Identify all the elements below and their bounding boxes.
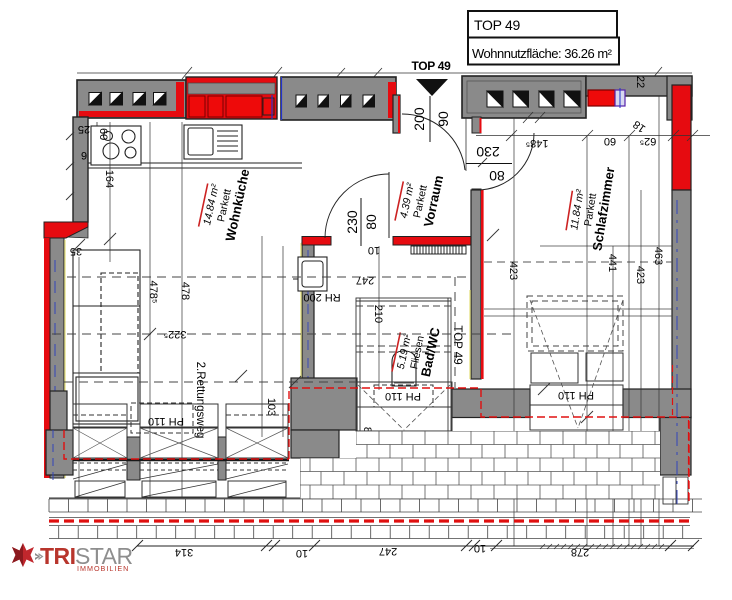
svg-text:210: 210: [372, 305, 384, 323]
svg-text:478⁵: 478⁵: [147, 281, 159, 304]
svg-text:441: 441: [606, 254, 618, 272]
svg-text:TOP 49: TOP 49: [451, 325, 463, 364]
svg-text:PH 110: PH 110: [558, 389, 594, 401]
svg-text:22: 22: [634, 76, 646, 88]
svg-text:10: 10: [474, 542, 486, 554]
svg-text:230: 230: [344, 210, 360, 234]
svg-text:247: 247: [379, 545, 397, 557]
svg-text:IMMOBILIEN: IMMOBILIEN: [77, 564, 129, 573]
svg-text:423: 423: [507, 262, 519, 280]
svg-text:423: 423: [634, 266, 646, 284]
svg-text:463: 463: [652, 247, 664, 265]
svg-text:60: 60: [604, 135, 616, 147]
svg-text:TOP 49: TOP 49: [474, 17, 520, 33]
svg-text:230: 230: [476, 144, 500, 160]
svg-text:Wohnnutzfläche: 36.26 m²: Wohnnutzfläche: 36.26 m²: [472, 46, 613, 61]
svg-text:90: 90: [435, 111, 451, 127]
svg-text:60: 60: [97, 128, 109, 140]
svg-text:103: 103: [265, 398, 277, 416]
svg-text:TOP 49: TOP 49: [411, 59, 451, 73]
svg-text:RH 200: RH 200: [303, 291, 340, 303]
svg-text:TRI: TRI: [40, 543, 76, 569]
svg-text:80: 80: [363, 214, 379, 230]
svg-text:35: 35: [70, 245, 82, 257]
svg-text:148⁵: 148⁵: [526, 137, 549, 149]
svg-text:PH 110: PH 110: [148, 415, 184, 427]
svg-text:6: 6: [81, 149, 87, 161]
svg-text:314: 314: [175, 546, 193, 558]
svg-text:10: 10: [368, 244, 380, 256]
svg-text:278: 278: [571, 546, 589, 558]
svg-text:10: 10: [296, 547, 308, 559]
svg-text:62⁵: 62⁵: [640, 135, 657, 147]
svg-text:25: 25: [78, 123, 90, 135]
svg-text:478: 478: [179, 282, 191, 300]
svg-text:247: 247: [356, 274, 374, 286]
svg-text:200: 200: [411, 107, 427, 131]
svg-text:80: 80: [489, 168, 505, 184]
svg-text:PH 110: PH 110: [385, 390, 421, 402]
svg-text:164: 164: [103, 170, 115, 188]
